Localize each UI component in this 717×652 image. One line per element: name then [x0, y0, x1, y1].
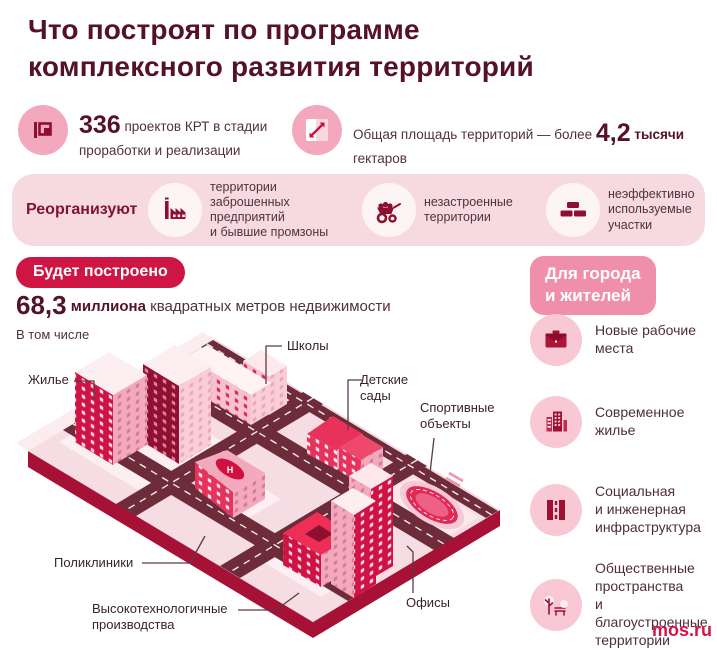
area-plan-icon: [18, 105, 68, 155]
benefit-infrastructure: Социальная и инженерная инфраструктура: [530, 483, 701, 537]
benefit-text: Современное жилье: [595, 404, 684, 440]
residential-tower: [75, 352, 147, 465]
benefits-badge: Для города и жителей: [530, 256, 656, 315]
page-title: Что построят по программе комплексного р…: [28, 12, 534, 86]
built-line: 68,3 миллиона квадратных метров недвижим…: [16, 290, 391, 321]
stat-area-value: 4,2: [596, 119, 631, 147]
page-title-line1: Что построят по программе: [28, 12, 534, 49]
city-map: H: [8, 332, 520, 652]
map-label-clinics: Поликлиники: [54, 555, 133, 571]
stat-projects-text: 336 проектов КРТ в стадии проработки и р…: [79, 105, 311, 159]
park-bench-icon: [530, 579, 582, 631]
city-buildings-icon: [530, 396, 582, 448]
reorganize-item-inefficient: неэффективно используемые участки: [546, 183, 717, 237]
map-label-sports: Спортивные объекты: [420, 400, 494, 433]
stat-area: Общая площадь территорий — более 4,2 тыс…: [292, 105, 712, 167]
svg-text:H: H: [227, 465, 234, 475]
expand-arrow-icon: [292, 105, 342, 155]
factory-icon: [148, 183, 202, 237]
benefit-text: Социальная и инженерная инфраструктура: [595, 483, 701, 537]
map-label-kindergartens: Детские сады: [360, 372, 408, 405]
bricks-icon: [546, 183, 600, 237]
map-label-hightech: Высокотехнологичные производства: [92, 601, 228, 634]
map-label-housing: Жилье: [28, 372, 69, 388]
built-badge: Будет построено: [16, 257, 185, 288]
reorganize-item-text: неэффективно используемые участки: [608, 187, 717, 233]
reorganize-item-text: незастроенные территории: [424, 195, 528, 226]
briefcase-icon: [530, 314, 582, 366]
reorganize-label: Реорганизуют: [26, 201, 148, 219]
mosru-link[interactable]: mos.ru: [652, 620, 712, 641]
map-label-schools: Школы: [287, 338, 329, 354]
office-tower: [331, 488, 376, 598]
page-title-line2: комплексного развития территорий: [28, 49, 534, 86]
reorganize-item-text: территории заброшенных предприятий и быв…: [210, 180, 350, 241]
stat-projects-value: 336: [79, 111, 121, 139]
benefit-text: Новые рабочие места: [595, 322, 696, 358]
stat-projects: 336 проектов КРТ в стадии проработки и р…: [18, 105, 318, 159]
reorganize-item-industrial: территории заброшенных предприятий и быв…: [148, 180, 350, 241]
road-icon: [530, 484, 582, 536]
built-value: 68,3: [16, 290, 67, 320]
residential-tower: [143, 345, 211, 464]
wheelbarrow-icon: [362, 183, 416, 237]
reorganize-band: Реорганизуют территории заброшенных пред…: [12, 174, 705, 246]
benefit-jobs: Новые рабочие места: [530, 314, 696, 366]
benefit-housing: Современное жилье: [530, 396, 684, 448]
reorganize-item-vacant: незастроенные территории: [362, 183, 534, 237]
stat-area-text: Общая площадь территорий — более 4,2 тыс…: [353, 105, 705, 167]
map-label-offices: Офисы: [406, 595, 450, 611]
infographic-page: Что построят по программе комплексного р…: [0, 0, 717, 652]
